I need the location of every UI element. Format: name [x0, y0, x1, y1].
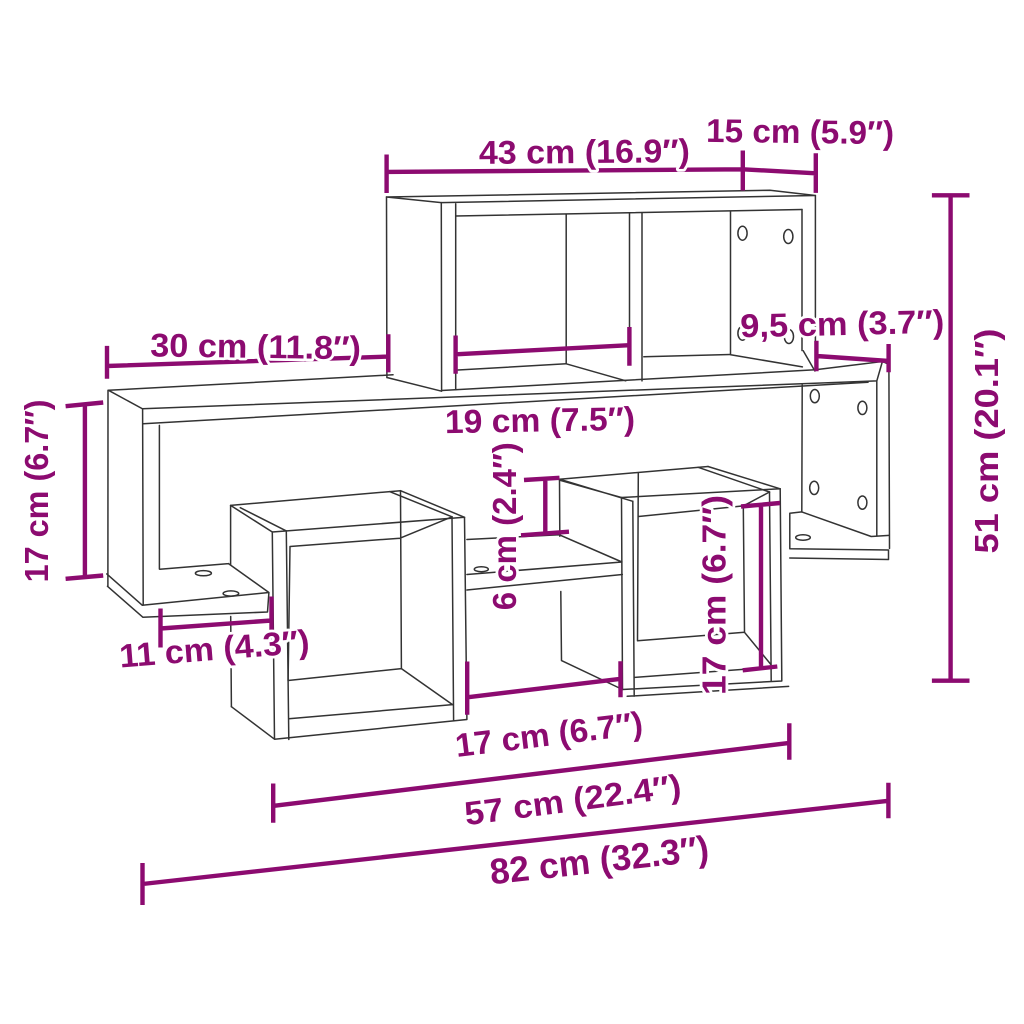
svg-text:17 cm (6.7″): 17 cm (6.7″)	[18, 399, 55, 582]
svg-text:19 cm (7.5″): 19 cm (7.5″)	[445, 400, 636, 440]
svg-text:43 cm (16.9″): 43 cm (16.9″)	[479, 132, 690, 171]
svg-text:17 cm (6.7″): 17 cm (6.7″)	[696, 495, 733, 695]
svg-text:15 cm (5.9″): 15 cm (5.9″)	[706, 112, 894, 151]
svg-text:6 cm (2.4″): 6 cm (2.4″)	[486, 442, 523, 610]
svg-text:51 cm (20.1″): 51 cm (20.1″)	[968, 329, 1005, 554]
svg-text:30 cm (11.8″): 30 cm (11.8″)	[150, 326, 361, 366]
svg-text:9,5 cm (3.7″): 9,5 cm (3.7″)	[740, 303, 945, 345]
